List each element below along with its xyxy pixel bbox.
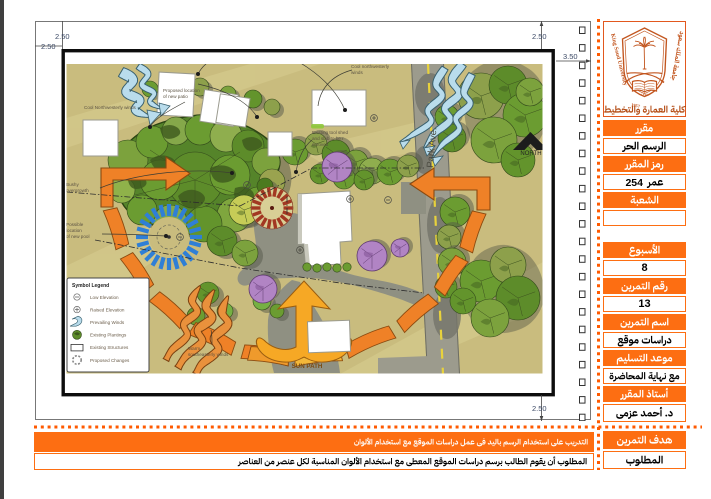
svg-text:١٣٧٧: ١٣٧٧ bbox=[641, 93, 648, 97]
svg-text:254: 254 bbox=[625, 177, 643, 189]
